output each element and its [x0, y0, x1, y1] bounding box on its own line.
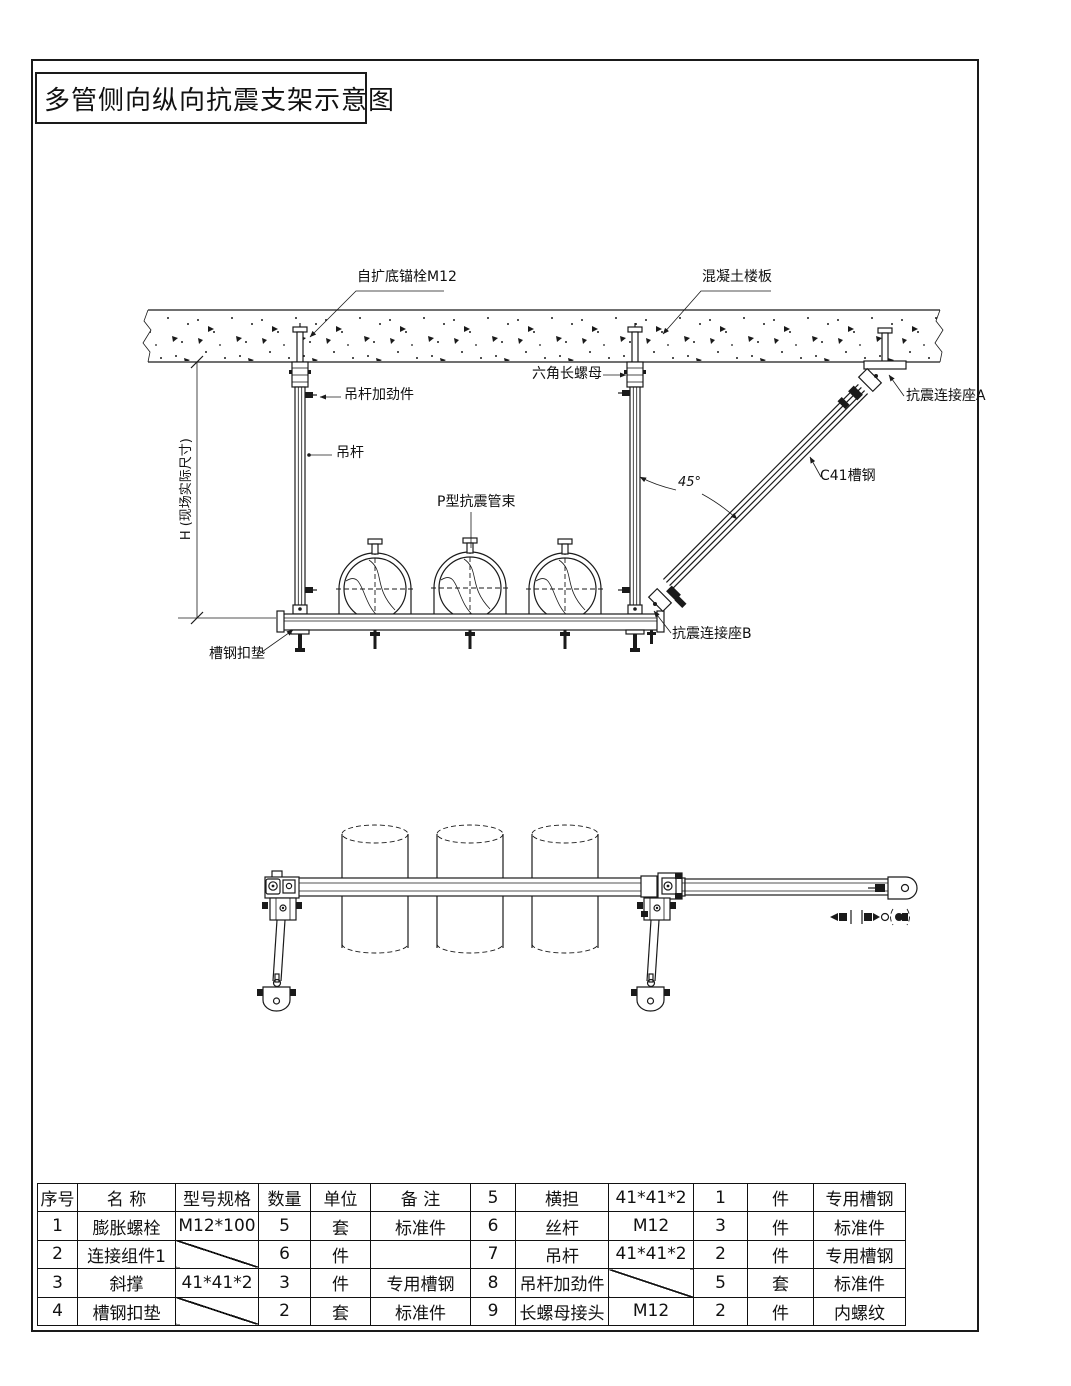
plan-cross-channel [267, 878, 685, 896]
clamp-bolt-under-channel [465, 630, 475, 649]
loose-nut-washer [891, 909, 910, 925]
plan-view [257, 825, 917, 1011]
rod-stiffener-bolt [305, 392, 317, 398]
table-cell: 件 [748, 1240, 814, 1268]
plan-right-bracket [637, 873, 682, 920]
table-cell: 9 [471, 1297, 516, 1325]
table-cell: 6 [259, 1240, 311, 1268]
label-height-dim: H (现场实际尺寸) [180, 409, 194, 569]
table-cell: 4 [38, 1297, 78, 1325]
label-anchor-bolt: 自扩底锚栓M12 [357, 270, 457, 285]
table-cell: 套 [311, 1212, 371, 1240]
clamp-bolt-under-channel [560, 630, 570, 649]
table-cell: 8 [471, 1269, 516, 1297]
table-cell: 横担 [516, 1184, 609, 1212]
label-hanger-stiffener: 吊杆加劲件 [344, 388, 414, 403]
channel-buckle-pad [291, 630, 309, 652]
bom-table: 序号名 称型号规格数量单位备 注5横担41*41*21件专用槽钢1膨胀螺栓M12… [37, 1183, 906, 1326]
table-cell: 套 [311, 1297, 371, 1325]
table-cell: 2 [38, 1240, 78, 1268]
table-cell: 41*41*2 [609, 1240, 694, 1268]
table-cell: 件 [748, 1212, 814, 1240]
plan-left-bracket [262, 871, 302, 920]
plan-brace-bar [685, 877, 917, 899]
table-row: 2连接组件16件7吊杆41*41*22件专用槽钢 [38, 1240, 906, 1268]
loose-bolt-1 [830, 910, 851, 924]
table-cell: 丝杆 [516, 1212, 609, 1240]
table-cell: 内螺纹 [814, 1297, 906, 1325]
clamp-bolt-under-channel [370, 630, 380, 649]
table-cell: 7 [471, 1240, 516, 1268]
hanger-rod-left [289, 362, 317, 614]
label-seat-b: 抗震连接座B [672, 627, 752, 642]
label-p-clamp: P型抗震管束 [437, 495, 515, 510]
table-cell: 标准件 [814, 1269, 906, 1297]
rod-stiffener-bolt [618, 587, 630, 593]
table-cell: 标准件 [371, 1212, 471, 1240]
table-cell: 2 [259, 1297, 311, 1325]
table-cell [176, 1240, 259, 1268]
table-cell: 斜撑 [78, 1269, 176, 1297]
loose-bolt-2 [862, 910, 889, 924]
label-hanger-rod: 吊杆 [336, 446, 364, 461]
table-cell: 2 [694, 1297, 748, 1325]
table-cell: 连接组件1 [78, 1240, 176, 1268]
label-concrete-slab: 混凝土楼板 [702, 270, 772, 285]
table-cell: 5 [694, 1269, 748, 1297]
drawing-canvas [0, 0, 1071, 1386]
table-cell [609, 1269, 694, 1297]
table-cell: 名 称 [78, 1184, 176, 1212]
table-cell: 吊杆加劲件 [516, 1269, 609, 1297]
table-cell: 41*41*2 [176, 1269, 259, 1297]
label-hex-long-nut: 六角长螺母 [532, 367, 602, 382]
rod-stiffener-bolt [618, 390, 630, 396]
channel-buckle-pad [626, 630, 644, 652]
table-cell: 槽钢扣垫 [78, 1297, 176, 1325]
table-cell [176, 1297, 259, 1325]
label-seat-a: 抗震连接座A [906, 389, 986, 404]
table-cell: 3 [259, 1269, 311, 1297]
concrete-slab [143, 310, 943, 362]
table-cell: 吊杆 [516, 1240, 609, 1268]
table-cell: 单位 [311, 1184, 371, 1212]
table-row: 4槽钢扣垫2套标准件9长螺母接头M122件内螺纹 [38, 1297, 906, 1325]
table-cell: 备 注 [371, 1184, 471, 1212]
table-cell: 1 [694, 1184, 748, 1212]
table-cell: M12*100 [176, 1212, 259, 1240]
table-cell: 型号规格 [176, 1184, 259, 1212]
table-cell [371, 1240, 471, 1268]
table-cell: 3 [38, 1269, 78, 1297]
table-cell: 2 [694, 1240, 748, 1268]
table-cell: 序号 [38, 1184, 78, 1212]
table-cell: 件 [748, 1297, 814, 1325]
table-row: 3斜撑41*41*23件专用槽钢8吊杆加劲件5套标准件 [38, 1269, 906, 1297]
table-cell: 长螺母接头 [516, 1297, 609, 1325]
table-cell: 1 [38, 1212, 78, 1240]
table-cell: 标准件 [814, 1212, 906, 1240]
label-c41-channel: C41槽钢 [820, 469, 876, 484]
plan-right-arm [631, 920, 670, 1011]
table-cell: 件 [311, 1269, 371, 1297]
table-cell: 6 [471, 1212, 516, 1240]
drawing-sheet: 多管侧向纵向抗震支架示意图 [0, 0, 1071, 1386]
table-cell: M12 [609, 1212, 694, 1240]
hanger-rod-right [618, 362, 646, 614]
leader-seat-a [889, 375, 904, 396]
table-cell: 标准件 [371, 1297, 471, 1325]
bom-table-body: 序号名 称型号规格数量单位备 注5横担41*41*21件专用槽钢1膨胀螺栓M12… [38, 1184, 906, 1326]
table-row: 序号名 称型号规格数量单位备 注5横担41*41*21件专用槽钢 [38, 1184, 906, 1212]
label-angle-45: 45° [678, 476, 701, 490]
table-cell: 件 [748, 1184, 814, 1212]
table-cell: 3 [694, 1212, 748, 1240]
label-channel-pad: 槽钢扣垫 [209, 647, 265, 662]
table-cell: 41*41*2 [609, 1184, 694, 1212]
table-cell: 数量 [259, 1184, 311, 1212]
table-cell: M12 [609, 1297, 694, 1325]
rod-stiffener-bolt [305, 587, 317, 593]
diagonal-brace [647, 361, 906, 644]
table-cell: 5 [471, 1184, 516, 1212]
table-cell: 5 [259, 1212, 311, 1240]
table-row: 1膨胀螺栓M12*1005套标准件6丝杆M123件标准件 [38, 1212, 906, 1240]
table-cell: 件 [311, 1240, 371, 1268]
table-cell: 专用槽钢 [814, 1240, 906, 1268]
cross-channel [277, 611, 664, 652]
table-cell: 膨胀螺栓 [78, 1212, 176, 1240]
plan-left-arm [257, 920, 296, 1011]
table-cell: 专用槽钢 [371, 1269, 471, 1297]
table-cell: 专用槽钢 [814, 1184, 906, 1212]
table-cell: 套 [748, 1269, 814, 1297]
